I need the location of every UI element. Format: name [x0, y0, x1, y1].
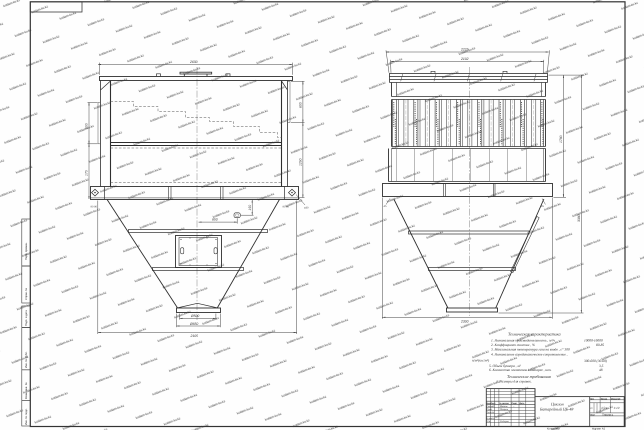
svg-text:300-600 (30-60): 300-600 (30-60)	[584, 359, 608, 363]
svg-text:3380: 3380	[577, 214, 581, 222]
svg-text:Разраб.: Разраб.	[487, 405, 495, 408]
svg-text:Инв. № дубл.: Инв. № дубл.	[25, 351, 28, 368]
svg-text:Перв. примен.: Перв. примен.	[25, 242, 28, 260]
svg-text:2102: 2102	[460, 57, 469, 61]
svg-text:ø30: ø30	[304, 207, 309, 210]
svg-text:Батарейный ЦБ-48: Батарейный ЦБ-48	[539, 406, 573, 411]
svg-text:600: 600	[299, 102, 303, 108]
svg-text:1. Размеры для справок.: 1. Размеры для справок.	[496, 380, 532, 384]
svg-text:Петров: Петров	[499, 408, 508, 411]
svg-text:Техническая характеристика: Техническая характеристика	[508, 332, 561, 337]
svg-text:Взам. инв. №: Взам. инв. №	[25, 382, 28, 399]
svg-text:Сидоров: Сидоров	[500, 420, 509, 423]
svg-text:О: О	[591, 407, 593, 410]
svg-text:6. Количество элементов в б: 6. Количество элементов в батарее , шт.	[489, 368, 552, 372]
svg-text:Листов 1: Листов 1	[604, 413, 614, 416]
svg-text:Пров.: Пров.	[487, 408, 493, 411]
svg-text:48: 48	[599, 368, 603, 372]
svg-text:Масштаб: Масштаб	[611, 397, 621, 400]
svg-text:2. Коэффициент очистки , %: 2. Коэффициент очистки , %	[491, 343, 535, 347]
svg-text:Лист: Лист	[590, 413, 595, 416]
svg-text:Ø500: Ø500	[190, 314, 199, 318]
svg-text:Утв.: Утв.	[487, 420, 492, 423]
svg-text:Справ. №: Справ. №	[25, 288, 28, 300]
svg-text:Инв. № подл.: Инв. № подл.	[25, 408, 28, 425]
svg-text:Дата: Дата	[520, 402, 526, 405]
svg-text:2225: 2225	[460, 47, 469, 51]
svg-text:2630: 2630	[189, 60, 198, 64]
svg-text:2105: 2105	[190, 334, 199, 338]
svg-text:1780: 1780	[559, 135, 563, 143]
svg-text:2300: 2300	[460, 319, 469, 323]
svg-text:90 90: 90 90	[283, 206, 290, 209]
svg-text:4. Номинальное аэродинамическ: 4. Номинальное аэродинамическое сопротив…	[491, 352, 568, 356]
svg-text:1250: 1250	[299, 158, 303, 166]
svg-text:4,5т: 4,5т	[601, 406, 608, 410]
svg-text:Масса: Масса	[601, 397, 608, 400]
svg-text:Лист: Лист	[491, 402, 496, 405]
svg-text:Лит.: Лит.	[590, 397, 595, 400]
svg-text:н/м²(кгс/м²): н/м²(кгс/м²)	[472, 358, 490, 362]
svg-text:600: 600	[85, 123, 89, 129]
svg-text:80-85: 80-85	[596, 343, 604, 347]
svg-text:Т.контр.: Т.контр.	[487, 411, 495, 414]
svg-text:Технические требования: Технические требования	[507, 374, 551, 379]
svg-text:Ø650: Ø650	[189, 322, 198, 326]
svg-text:150: 150	[248, 205, 252, 211]
svg-text:Н.контр.: Н.контр.	[487, 417, 496, 420]
svg-text:Подп. и дата: Подп. и дата	[25, 310, 28, 326]
svg-text:1:10: 1:10	[614, 406, 620, 410]
svg-text:90 90: 90 90	[91, 206, 98, 209]
svg-text:650: 650	[212, 218, 218, 222]
svg-text:170: 170	[85, 170, 89, 176]
svg-text:3. Максимальная температура: 3. Максимальная температура газа на вход…	[491, 347, 570, 351]
